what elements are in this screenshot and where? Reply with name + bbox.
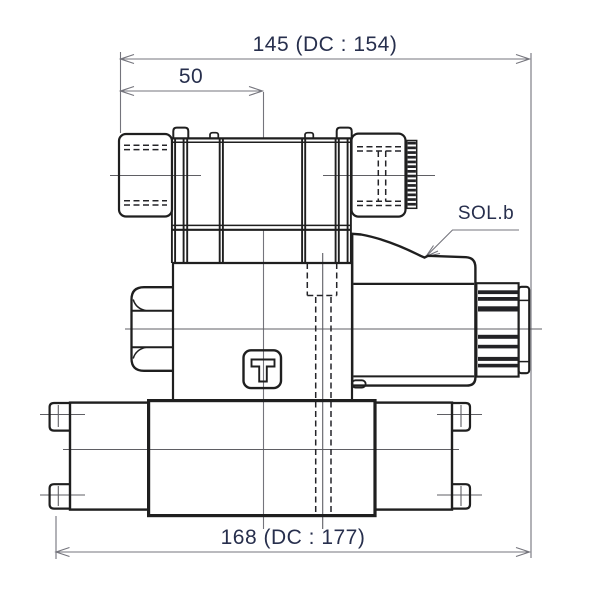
- dimension-50-label: 50: [141, 66, 241, 88]
- dimension-145-label: 145 (DC : 154): [195, 34, 455, 56]
- centerlines: [40, 176, 542, 530]
- valve-technical-drawing: 145 (DC : 154) 50 168 (DC : 177) SOL.b: [0, 0, 600, 600]
- sol-b-label: SOL.b: [446, 204, 526, 224]
- mounting-base: [50, 401, 470, 516]
- bolt-tab-left-bottom: [50, 484, 70, 508]
- solenoid-tube-assembly: [119, 128, 417, 263]
- sol-b-leader: [426, 230, 519, 257]
- valve-body: [132, 263, 353, 401]
- dimension-50-group: [121, 87, 264, 530]
- tube-bolt-right: [337, 128, 352, 139]
- dimension-168-label: 168 (DC : 177): [163, 527, 423, 549]
- base-center-block: [149, 401, 375, 516]
- brand-logo: [244, 350, 282, 388]
- sol-b-housing: [352, 234, 529, 388]
- valve-side-view-linework: [0, 0, 600, 600]
- tube-bolt-left: [173, 128, 188, 139]
- base-right-block: [375, 403, 452, 510]
- electrical-connector-ribs: [407, 141, 417, 209]
- bolt-tab-left-top: [50, 403, 70, 431]
- adjustment-knob: [476, 283, 518, 376]
- base-left-block: [70, 403, 149, 510]
- knob-end-cap: [519, 287, 530, 373]
